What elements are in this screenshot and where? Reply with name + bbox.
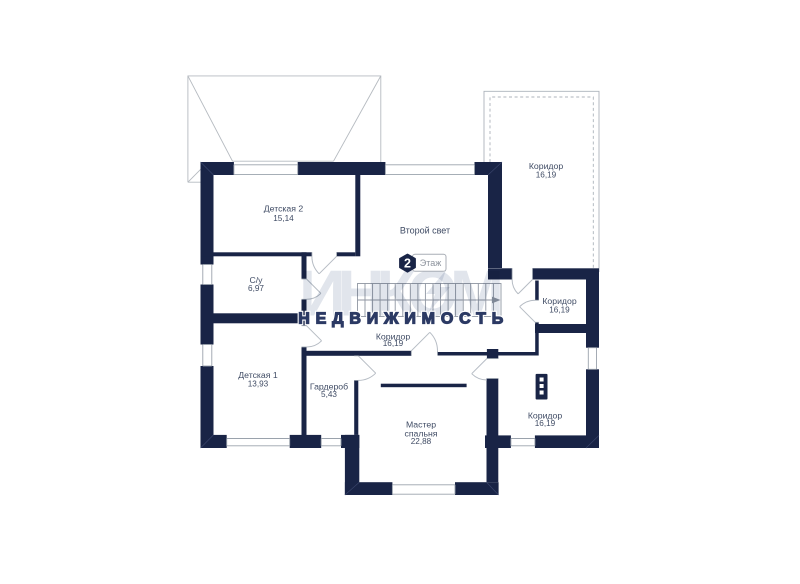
svg-text:Детская 1: Детская 1	[238, 370, 278, 380]
svg-text:2: 2	[404, 256, 411, 270]
svg-text:16,19: 16,19	[549, 305, 570, 314]
svg-text:22,88: 22,88	[411, 437, 432, 446]
svg-text:16,19: 16,19	[535, 419, 556, 428]
svg-text:13,93: 13,93	[248, 380, 269, 389]
svg-text:16,19: 16,19	[383, 339, 404, 348]
svg-text:Детская 2: Детская 2	[264, 204, 304, 214]
svg-text:6,97: 6,97	[248, 284, 264, 293]
svg-text:16,19: 16,19	[536, 171, 557, 180]
svg-text:Второй свет: Второй свет	[400, 225, 450, 235]
svg-text:15,14: 15,14	[273, 214, 294, 223]
svg-text:Этаж: Этаж	[420, 258, 442, 268]
svg-text:Коридор: Коридор	[529, 161, 563, 171]
svg-text:5,43: 5,43	[321, 390, 337, 399]
